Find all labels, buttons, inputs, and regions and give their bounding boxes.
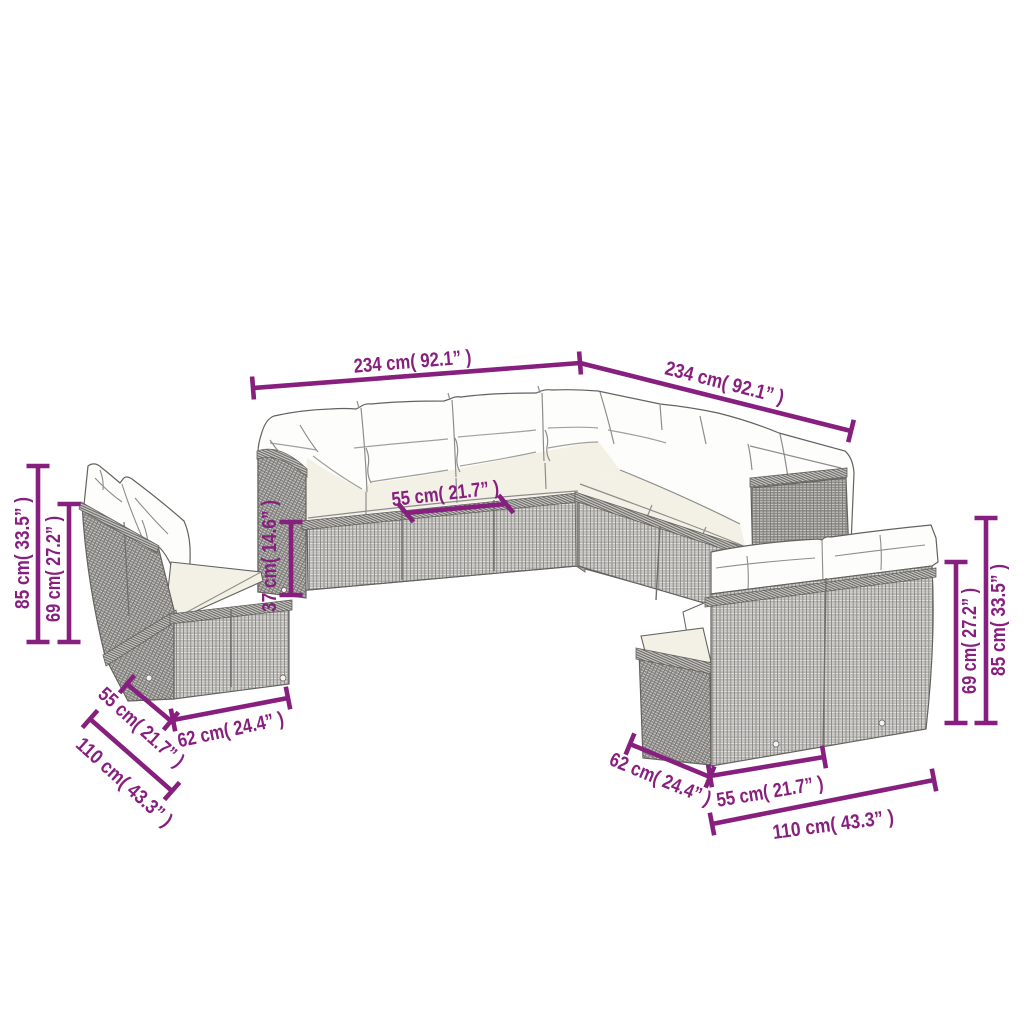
svg-text:37 cm( 14.6” ): 37 cm( 14.6” ) <box>259 500 281 612</box>
svg-text:69 cm( 27.2” ): 69 cm( 27.2” ) <box>43 516 65 622</box>
svg-text:85 cm( 33.5” ): 85 cm( 33.5” ) <box>988 564 1010 676</box>
svg-text:85 cm( 33.5” ): 85 cm( 33.5” ) <box>12 497 34 609</box>
svg-text:69 cm( 27.2” ): 69 cm( 27.2” ) <box>959 588 981 694</box>
svg-text:110 cm( 43.3” ): 110 cm( 43.3” ) <box>771 806 895 844</box>
